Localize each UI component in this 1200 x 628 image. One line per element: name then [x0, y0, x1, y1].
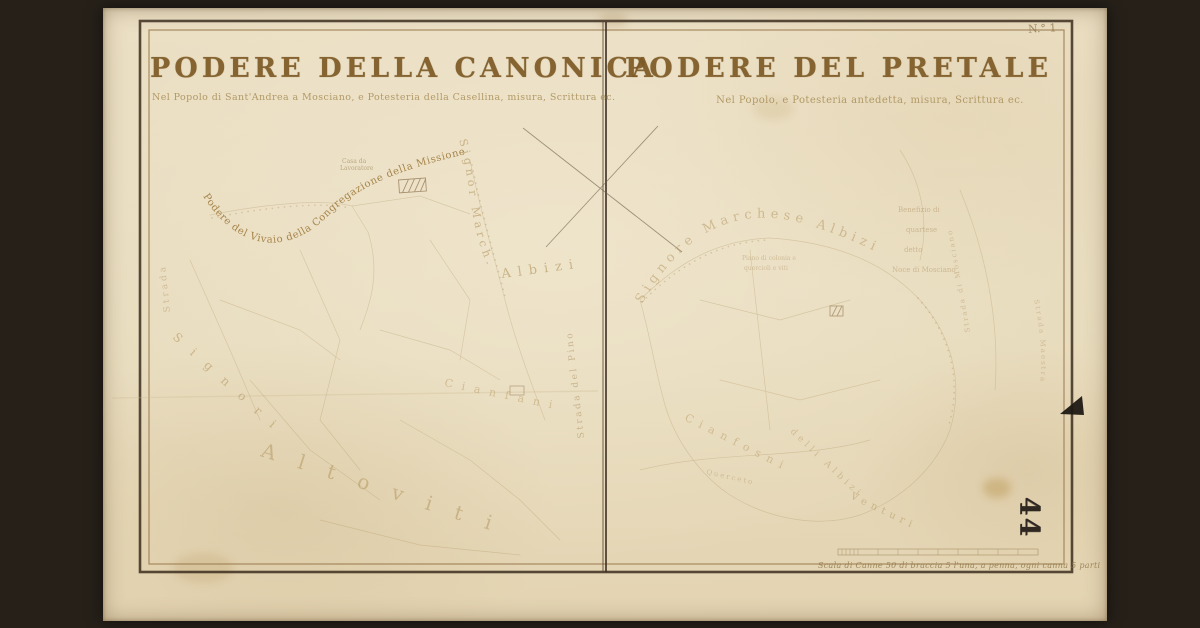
scale-caption: Scala di Canne 50 di braccia 5 l'una, a … — [818, 561, 1100, 570]
label-querceto: Querceto — [706, 468, 755, 486]
building-symbol-right — [830, 306, 843, 316]
svg-text:Strada Maestra: Strada Maestra — [1032, 299, 1047, 384]
label-strada-west: Strada — [158, 263, 173, 312]
svg-text:Strada di Mosciano: Strada di Mosciano — [946, 228, 972, 333]
label-delli-albizi: delli Albizi — [788, 427, 865, 500]
label-house-caption-line1: Casa da — [342, 158, 367, 165]
label-venturi: Venturi — [848, 490, 919, 532]
label-albizi: Albizi — [500, 257, 581, 282]
svg-text:Strada: Strada — [158, 263, 173, 312]
label-signor-march: Signor March. — [456, 137, 498, 269]
label-strada-mosciano: Strada di Mosciano — [946, 228, 972, 333]
label-benefice-line1: Benefizio di — [898, 206, 940, 214]
left-map-title: PODERE DELLA CANONICA — [150, 53, 610, 84]
parcel-lines-right — [640, 150, 996, 521]
archive-stamp-44: 44 — [1013, 497, 1044, 539]
label-field-note-line2: quercioli e viti — [744, 265, 788, 272]
label-benefice-line4: Noce di Mosciano — [892, 266, 956, 274]
svg-text:Signor March.: Signor March. — [456, 137, 498, 269]
label-benefice-line3: detto — [904, 246, 922, 254]
svg-text:Cianfani: Cianfani — [443, 376, 562, 413]
svg-text:Strada del Pino: Strada del Pino — [565, 330, 587, 438]
label-strada-maestra: Strada Maestra — [1032, 299, 1047, 384]
label-altoviti: Altoviti — [258, 438, 519, 542]
label-cianfosni: Cianfosni — [683, 411, 792, 474]
archival-map-photo: Podere del Vivaio della Congregazione de… — [0, 0, 1200, 628]
svg-text:Venturi: Venturi — [848, 490, 919, 532]
label-congregazione-missione: Podere del Vivaio della Congregazione de… — [200, 146, 466, 245]
scale-ruler — [838, 549, 1038, 555]
label-signori: Signori — [170, 330, 290, 441]
label-cianfani: Cianfani — [443, 376, 562, 413]
svg-text:delli Albizi: delli Albizi — [788, 427, 865, 500]
right-map-title: PODERE DEL PRETALE — [625, 53, 1040, 84]
label-field-note-line1: Piano di colonia e — [742, 255, 796, 262]
svg-text:Podere del Vivaio della Congre: Podere del Vivaio della Congregazione de… — [200, 146, 466, 245]
label-house-caption-line2: Lavoratore — [340, 165, 374, 172]
farmhouse-symbol-left — [399, 178, 427, 193]
left-map-subtitle: Nel Popolo di Sant'Andrea a Mosciano, e … — [152, 92, 612, 103]
sheet-number: N.° 1 — [1028, 21, 1057, 35]
label-strada-del-pino: Strada del Pino — [565, 330, 587, 438]
right-map-subtitle: Nel Popolo, e Potesteria antedetta, misu… — [660, 95, 1080, 106]
label-benefice-line2: quartese — [906, 226, 937, 234]
svg-text:Signori: Signori — [170, 330, 290, 441]
svg-text:Albizi: Albizi — [500, 257, 581, 282]
svg-text:Querceto: Querceto — [706, 468, 755, 486]
svg-text:Cianfosni: Cianfosni — [683, 411, 792, 474]
svg-text:Altoviti: Altoviti — [258, 438, 519, 542]
